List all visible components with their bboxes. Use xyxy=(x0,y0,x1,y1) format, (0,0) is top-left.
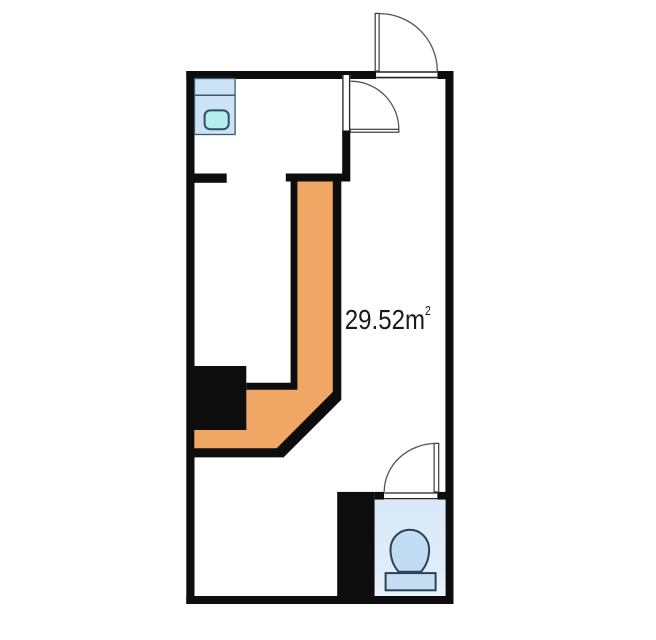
svg-text:2: 2 xyxy=(425,303,431,318)
svg-text:29.52m: 29.52m xyxy=(345,304,425,335)
